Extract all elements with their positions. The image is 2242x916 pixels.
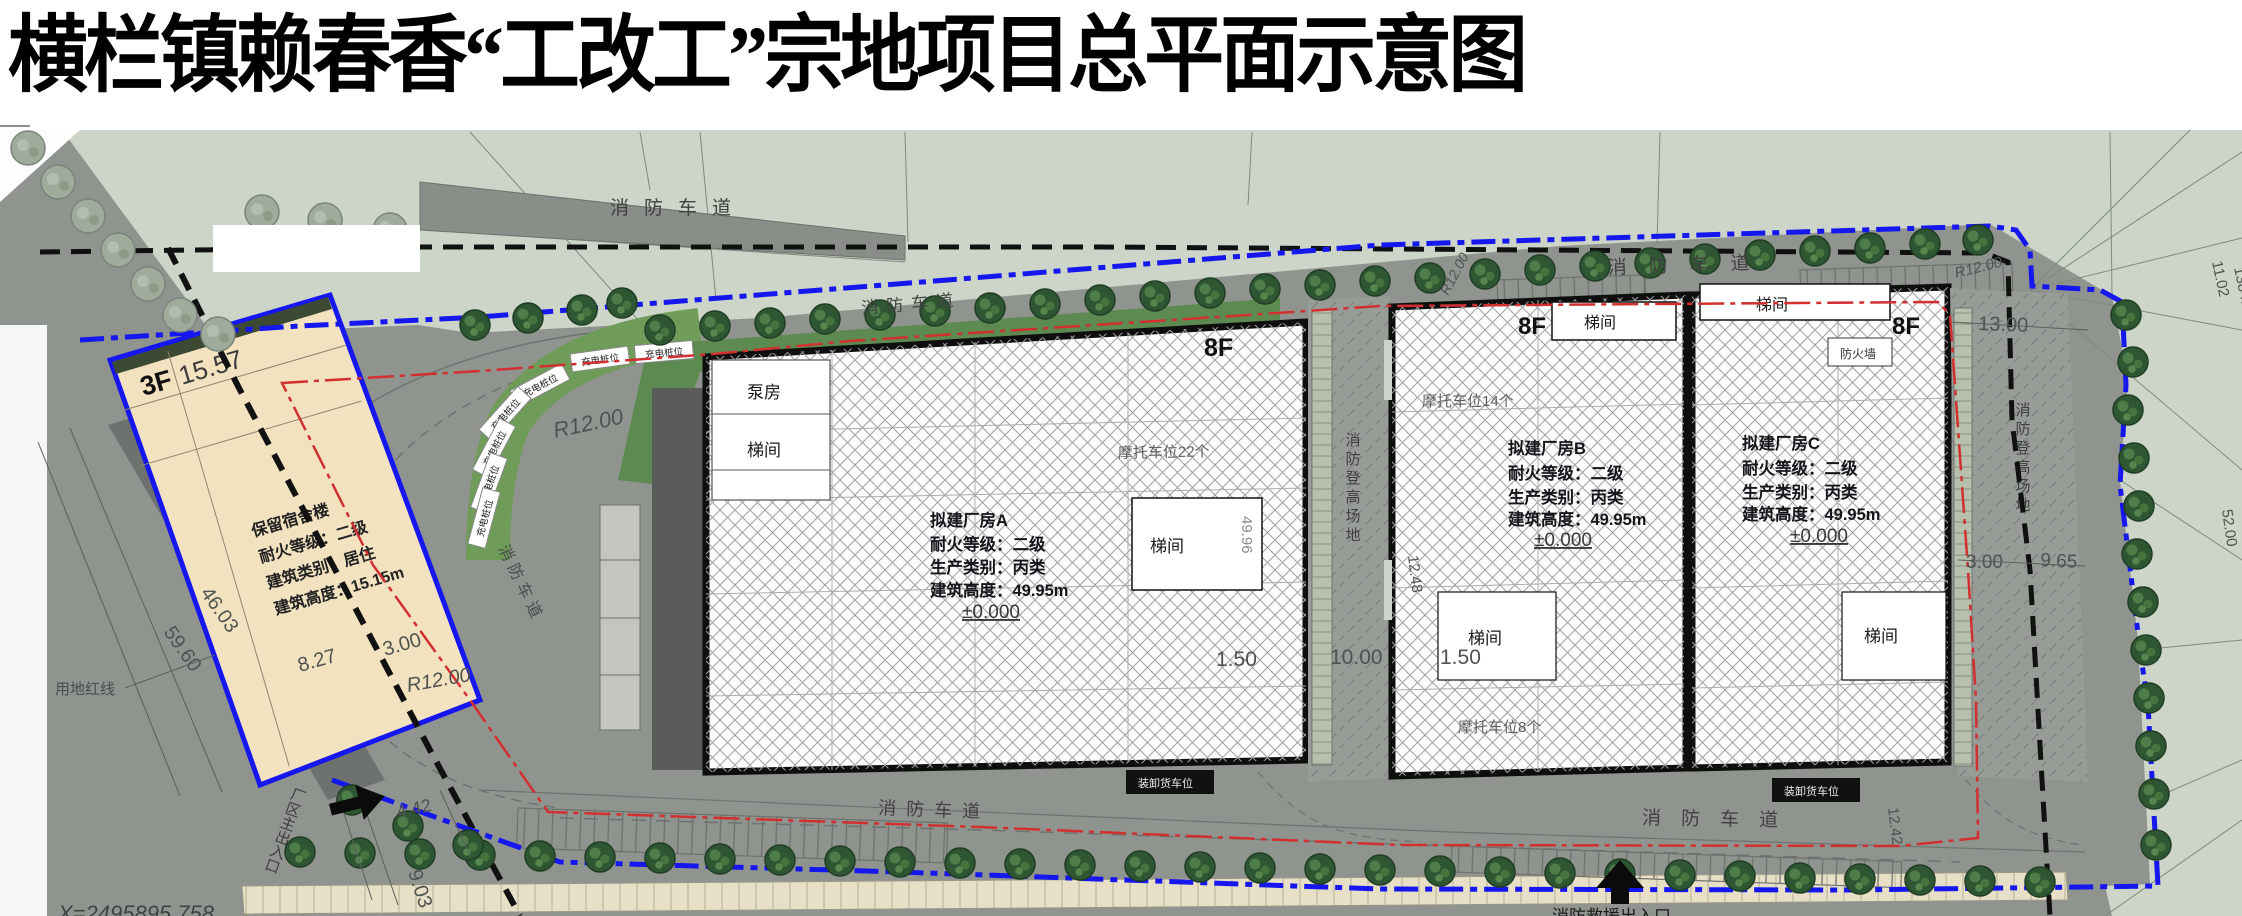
- left-margin: [0, 325, 47, 916]
- fire-lane-label: 消防车道: [1642, 807, 1798, 832]
- factory-c-firewall: 防火墙: [1840, 346, 1876, 361]
- factory-b-height: 建筑高度：49.95m: [1508, 509, 1646, 529]
- factory-a-level: ±0.000: [962, 602, 1020, 623]
- factory-a-category: 生产类别：丙类: [930, 557, 1046, 577]
- factory-b-stair-top: 梯间: [1584, 314, 1616, 332]
- corridor-ab: 消防登高场地: [1308, 296, 1390, 782]
- factory-a-height: 建筑高度：49.95m: [930, 580, 1068, 600]
- factory-c-floor-label: 8F: [1892, 313, 1920, 340]
- coord-x-label: X=2495895.758: [57, 901, 215, 916]
- factory-a-pump-room: 泵房: [747, 383, 781, 402]
- factory-c-stair-low: 梯间: [1864, 627, 1898, 646]
- factory-a: 泵房 梯间 8F 摩托车位22个 拟建厂房A 耐火等级：二级 生产类别：丙类 建…: [706, 322, 1306, 794]
- factory-a-fire-rating: 耐火等级：二级: [930, 534, 1046, 554]
- dim-1-50-a: 1.50: [1216, 648, 1257, 671]
- factory-c-category: 生产类别：丙类: [1742, 482, 1858, 502]
- fire-lane-label: 消防车道: [878, 798, 991, 822]
- site-plan: 3F 15.57 保留宿舍楼 耐火等级：二级 建筑类别：居住 建筑高度：15.1…: [0, 0, 2242, 916]
- dim-10-00: 10.00: [1330, 646, 1383, 669]
- corridor-c-east: 消防登高场地: [1950, 288, 2088, 782]
- factory-b-moto-bottom: 摩托车位8个: [1458, 718, 1541, 736]
- blank-label-box: [213, 225, 420, 272]
- factory-a-loading-label: 装卸货车位: [1138, 776, 1193, 790]
- factory-a-floor-label: 8F: [1204, 334, 1233, 362]
- factory-b-category: 生产类别：丙类: [1508, 487, 1624, 507]
- dim-3-00-e: 3.00: [1966, 552, 2003, 573]
- factory-a-name: 拟建厂房A: [930, 510, 1008, 530]
- factory-a-stair-upper: 梯间: [747, 441, 781, 460]
- factory-c-level: ±0.000: [1790, 526, 1848, 547]
- fire-rescue-entrance-label: 消防救援出入口: [1552, 907, 1671, 916]
- factory-b-moto-top: 摩托车位14个: [1422, 392, 1514, 410]
- factory-b-fire-rating: 耐火等级：二级: [1508, 463, 1624, 483]
- factory-b-level: ±0.000: [1534, 530, 1592, 551]
- factory-c-name: 拟建厂房C: [1742, 433, 1820, 453]
- fire-lane-label: 消防车道: [610, 197, 746, 219]
- factory-c: 梯间 8F 防火墙 拟建厂房C 耐火等级：二级 生产类别：丙类 建筑高度：49.…: [1692, 284, 1948, 802]
- factory-c-loading-label: 装卸货车位: [1784, 784, 1839, 798]
- page: 横栏镇赖春香“工改工”宗地项目总平面示意图: [0, 0, 2242, 916]
- factory-b: 梯间 8F 摩托车位14个 拟建厂房B 耐火等级：二级 生产类别：丙类 建筑高度…: [1384, 295, 1686, 776]
- factory-c-height: 建筑高度：49.95m: [1742, 504, 1880, 524]
- factory-c-stair-top: 梯间: [1756, 296, 1788, 314]
- factory-a-stair-box: 梯间: [1150, 537, 1184, 556]
- factory-a-moto-label: 摩托车位22个: [1118, 442, 1210, 462]
- factory-a-stair-elev: 49.96: [1238, 516, 1255, 554]
- factory-b-name: 拟建厂房B: [1508, 438, 1586, 458]
- factory-c-fire-rating: 耐火等级：二级: [1742, 458, 1858, 478]
- land-red-line-label: 用地红线: [55, 681, 115, 698]
- dim-9-65: 9.65: [2040, 550, 2078, 573]
- corridor-ab-label: 消防登高场地: [1344, 432, 1361, 546]
- factory-b-floor-label: 8F: [1518, 313, 1546, 340]
- dim-1-50-b: 1.50: [1440, 646, 1481, 669]
